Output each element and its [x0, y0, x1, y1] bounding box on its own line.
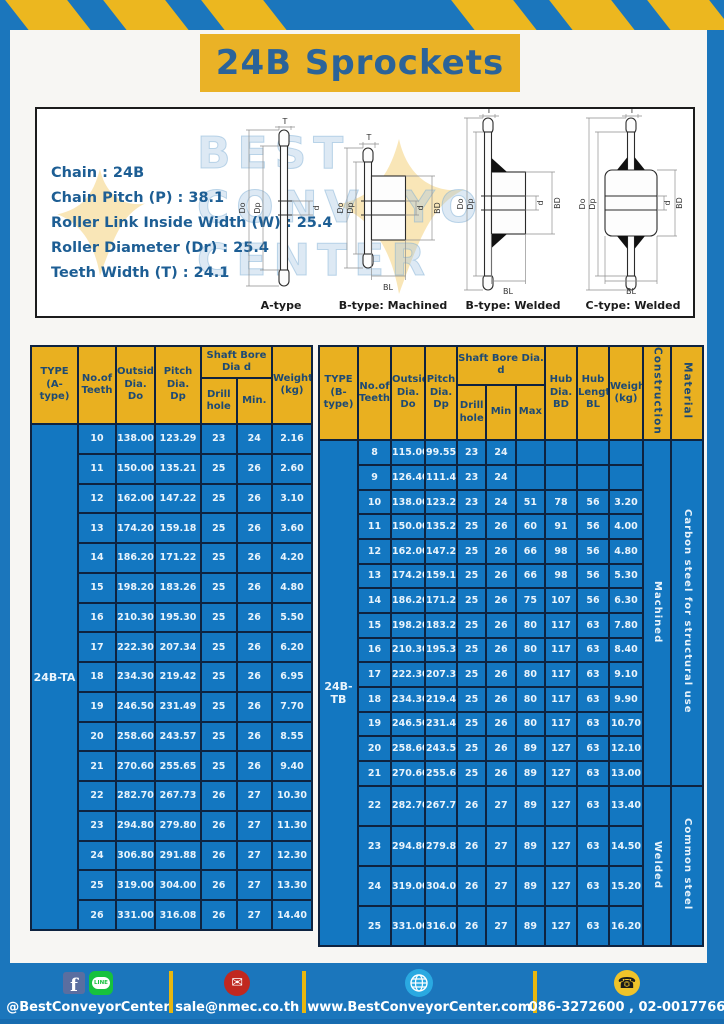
- table-a-cell: 27: [237, 811, 273, 841]
- a-type-table-header: TYPE (A-type) No.of Teeth Outside Dia. D…: [31, 346, 312, 424]
- diagram-a-type: T Do Dp d A-type: [233, 118, 329, 312]
- svg-text:BD: BD: [553, 197, 562, 209]
- table-b-cell: 319.00: [391, 866, 425, 906]
- table-a-cell: 198.20: [116, 573, 155, 603]
- table-b-cell: 9.10: [609, 662, 643, 687]
- table-a-cell: 231.49: [155, 692, 201, 722]
- table-b-cell: 10: [358, 490, 391, 515]
- hazard-stripes-right: [448, 0, 724, 30]
- table-a-cell: 12.30: [272, 841, 312, 871]
- table-b-cell: 27: [486, 906, 515, 946]
- table-a-cell: 255.65: [155, 751, 201, 781]
- table-b-cell: 9.90: [609, 687, 643, 712]
- table-b-cell: 186.20: [391, 588, 425, 613]
- table-b-cell: 138.00: [391, 490, 425, 515]
- svg-text:T: T: [282, 118, 288, 126]
- svg-text:Do: Do: [457, 198, 465, 209]
- table-b-cell: 304.00: [425, 866, 457, 906]
- table-b-cell: 198.20: [391, 613, 425, 638]
- facebook-icon: f: [63, 972, 85, 994]
- table-a-cell: 13.30: [272, 870, 312, 900]
- table-b-cell: 26: [457, 906, 486, 946]
- table-a-cell: 183.26: [155, 573, 201, 603]
- table-b-cell: 331.00: [391, 906, 425, 946]
- table-b-cell: 63: [577, 761, 609, 786]
- table-b-cell: 210.30: [391, 638, 425, 663]
- svg-text:Dp: Dp: [588, 198, 597, 209]
- table-b-cell: 63: [577, 662, 609, 687]
- table-b-cell: 123.29: [425, 490, 457, 515]
- table-b-cell: 6.30: [609, 588, 643, 613]
- table-b-cell: 117: [545, 687, 577, 712]
- phone-numbers: 086-3272600 , 02-0017766: [529, 1000, 724, 1015]
- table-a-cell: 25: [201, 454, 237, 484]
- table-b-cell: 162.00: [391, 539, 425, 564]
- table-a-cell: 159.18: [155, 513, 201, 543]
- table-b-cell: 219.42: [425, 687, 457, 712]
- table-a-cell: 25: [201, 662, 237, 692]
- table-a-cell: 246.50: [116, 692, 155, 722]
- table-a-cell: 26: [237, 751, 273, 781]
- table-b-cell: 11: [358, 514, 391, 539]
- table-b-cell: 89: [516, 736, 545, 761]
- table-b-cell: 111.40: [425, 465, 457, 490]
- mail-icon: ✉: [224, 970, 250, 996]
- table-a-cell: 19: [78, 692, 116, 722]
- table-b-cell: 26: [486, 613, 515, 638]
- table-a-cell: 23: [78, 811, 116, 841]
- table-b-cell: 25: [358, 906, 391, 946]
- table-a-cell: 15: [78, 573, 116, 603]
- table-a-cell: 27: [237, 900, 273, 930]
- table-a-cell: 8.55: [272, 722, 312, 752]
- table-b-cell: 282.70: [391, 786, 425, 826]
- table-a-cell: 20: [78, 722, 116, 752]
- table-b-construction-cell: Welded: [643, 786, 671, 946]
- table-b-cell: 159.18: [425, 564, 457, 589]
- table-a-cell: 26: [237, 484, 273, 514]
- table-b-cell: 16: [358, 638, 391, 663]
- table-b-cell: 80: [516, 662, 545, 687]
- table-b-cell: 56: [577, 539, 609, 564]
- b-type-table-header: TYPE (B-type) No.of Teeth Outside Dia. D…: [319, 346, 703, 440]
- table-a-cell: 291.88: [155, 841, 201, 871]
- header-max-b: Max: [516, 385, 545, 441]
- table-b-cell: 89: [516, 906, 545, 946]
- table-b-cell: 26: [486, 514, 515, 539]
- diagram-label-b-type-machined: B-type: Machined: [339, 299, 448, 312]
- table-b-cell: 26: [486, 761, 515, 786]
- table-b-cell: 26: [457, 826, 486, 866]
- table-a-cell: 243.57: [155, 722, 201, 752]
- table-b-cell: 258.60: [391, 736, 425, 761]
- table-b-cell: 115.00: [391, 440, 425, 465]
- table-a-cell: 258.60: [116, 722, 155, 752]
- table-b-cell: 25: [457, 588, 486, 613]
- table-b-cell: 63: [577, 712, 609, 737]
- svg-text:Do: Do: [337, 202, 345, 213]
- a-type-drawing: T Do Dp d: [233, 118, 329, 298]
- table-b-cell: 26: [486, 638, 515, 663]
- table-a-cell: 195.30: [155, 603, 201, 633]
- table-b-cell: 63: [577, 736, 609, 761]
- table-b-cell: 117: [545, 712, 577, 737]
- table-b-cell: 22: [358, 786, 391, 826]
- table-b-cell: 78: [545, 490, 577, 515]
- header-shaft-bore-a: Shaft Bore Dia d: [201, 346, 272, 378]
- table-a-cell: 27: [237, 781, 273, 811]
- svg-text:d: d: [312, 205, 321, 210]
- footer-phone-section: ☎ 086-3272600 , 02-0017766: [538, 968, 716, 1015]
- table-b-cell: 25: [457, 662, 486, 687]
- table-b-cell: 63: [577, 906, 609, 946]
- footer-divider: [169, 971, 173, 1013]
- table-b-cell: 23: [457, 490, 486, 515]
- table-b-cell: 25: [457, 564, 486, 589]
- table-b-cell: 26: [457, 866, 486, 906]
- footer-contact-bar: f LINE @BestConveyorCenter ✉ sale@nmec.c…: [0, 963, 724, 1024]
- table-b-cell: 24: [486, 440, 515, 465]
- table-a-cell: 21: [78, 751, 116, 781]
- table-b-cell: 27: [486, 786, 515, 826]
- table-b-cell: 89: [516, 786, 545, 826]
- svg-text:Do: Do: [578, 198, 587, 209]
- table-b-cell: 4.80: [609, 539, 643, 564]
- diagram-b-type-welded: T Do Dp d: [457, 108, 569, 312]
- phone-icon: ☎: [614, 970, 640, 996]
- table-b-cell: [577, 465, 609, 490]
- header-construction-b: Construction: [643, 346, 671, 440]
- table-b-cell: [577, 440, 609, 465]
- table-a-cell: 171.22: [155, 543, 201, 573]
- table-b-cell: 24: [358, 866, 391, 906]
- table-b-cell: 99.55: [425, 440, 457, 465]
- table-a-cell: 16: [78, 603, 116, 633]
- table-a-cell: 25: [78, 870, 116, 900]
- website-url: www.BestConveyorCenter.com: [307, 1000, 531, 1015]
- table-b-cell: 56: [577, 588, 609, 613]
- content-area: 24B Sprockets BEST CONVEYOR CENTER Chain…: [10, 30, 707, 963]
- table-b-cell: 56: [577, 564, 609, 589]
- table-a-cell: 26: [237, 722, 273, 752]
- table-b-cell: 63: [577, 638, 609, 663]
- table-a-cell: 25: [201, 573, 237, 603]
- table-a-cell: 25: [201, 722, 237, 752]
- header-outside-dia-a: Outside Dia. Do: [116, 346, 155, 424]
- table-b-cell: 270.60: [391, 761, 425, 786]
- table-b-cell: 27: [486, 826, 515, 866]
- table-b-cell: [516, 440, 545, 465]
- table-b-cell: 183.26: [425, 613, 457, 638]
- svg-text:BL: BL: [503, 287, 513, 296]
- header-type-a: TYPE (A-type): [31, 346, 78, 424]
- table-b-cell: 267.73: [425, 786, 457, 826]
- diagram-label-a-type: A-type: [261, 299, 302, 312]
- table-b-cell: 80: [516, 687, 545, 712]
- table-a-cell: 26: [201, 811, 237, 841]
- table-b-cell: 25: [457, 736, 486, 761]
- table-a-cell: 17: [78, 632, 116, 662]
- table-b-cell: 25: [457, 514, 486, 539]
- table-a-cell: 25: [201, 603, 237, 633]
- table-b-cell: 294.80: [391, 826, 425, 866]
- table-a-cell: 222.30: [116, 632, 155, 662]
- table-b-material-cell: Carbon steel for structural use: [671, 440, 703, 786]
- table-b-cell: 9: [358, 465, 391, 490]
- table-a-cell: 25: [201, 513, 237, 543]
- table-b-cell: 255.65: [425, 761, 457, 786]
- table-b-cell: 222.30: [391, 662, 425, 687]
- header-pitch-dia-a: Pitch Dia. Dp: [155, 346, 201, 424]
- table-a-cell: 4.80: [272, 573, 312, 603]
- table-b-cell: [545, 440, 577, 465]
- table-b-cell: 24: [486, 490, 515, 515]
- table-b-cell: 75: [516, 588, 545, 613]
- header-hub-dia-b: Hub Dia. BD: [545, 346, 577, 440]
- table-b-cell: 8.40: [609, 638, 643, 663]
- table-b-cell: 80: [516, 638, 545, 663]
- table-b-cell: 127: [545, 906, 577, 946]
- table-b-cell: 26: [486, 687, 515, 712]
- table-b-cell: 246.50: [391, 712, 425, 737]
- table-a-cell: 2.60: [272, 454, 312, 484]
- table-b-cell: 127: [545, 761, 577, 786]
- table-a-cell: 26: [237, 662, 273, 692]
- table-a-cell: 13: [78, 513, 116, 543]
- svg-text:T: T: [629, 108, 635, 115]
- header-hub-length-b: Hub Length BL: [577, 346, 609, 440]
- a-type-spec-table: TYPE (A-type) No.of Teeth Outside Dia. D…: [30, 345, 313, 931]
- table-b-cell: 127: [545, 866, 577, 906]
- table-b-cell: 56: [577, 490, 609, 515]
- table-b-cell: 279.80: [425, 826, 457, 866]
- table-a-cell: 7.70: [272, 692, 312, 722]
- table-b-cell: 80: [516, 712, 545, 737]
- table-b-cell: 21: [358, 761, 391, 786]
- table-b-cell: 89: [516, 866, 545, 906]
- header-shaft-bore-b: Shaft Bore Dia. d: [457, 346, 545, 385]
- table-a-cell: 11: [78, 454, 116, 484]
- table-a-cell: 26: [201, 870, 237, 900]
- table-b-cell: 20: [358, 736, 391, 761]
- social-handle: @BestConveyorCenter: [6, 1000, 170, 1015]
- table-a-cell: 25: [201, 484, 237, 514]
- table-a-cell: 23: [201, 424, 237, 454]
- table-b-cell: 24: [486, 465, 515, 490]
- table-b-cell: 8: [358, 440, 391, 465]
- table-b-cell: 13.00: [609, 761, 643, 786]
- table-b-cell: 5.30: [609, 564, 643, 589]
- table-a-cell: 24: [237, 424, 273, 454]
- svg-text:T: T: [366, 133, 372, 142]
- b-type-machined-drawing: T Do Dp d BD: [337, 118, 449, 298]
- table-a-cell: 26: [237, 543, 273, 573]
- table-b-cell: [609, 465, 643, 490]
- table-b-cell: 60: [516, 514, 545, 539]
- table-b-cell: 231.49: [425, 712, 457, 737]
- table-a-cell: 219.42: [155, 662, 201, 692]
- svg-text:T: T: [486, 108, 492, 115]
- table-a-cell: 3.60: [272, 513, 312, 543]
- table-b-cell: 63: [577, 866, 609, 906]
- table-b-cell: 127: [545, 736, 577, 761]
- table-a-cell: 331.00: [116, 900, 155, 930]
- table-b-row: 22282.70267.732627891276313.40WeldedComm…: [319, 786, 703, 826]
- table-b-cell: 316.08: [425, 906, 457, 946]
- table-b-cell: 26: [486, 662, 515, 687]
- table-a-cell: 304.00: [155, 870, 201, 900]
- table-a-cell: 27: [237, 841, 273, 871]
- table-b-cell: 127: [545, 786, 577, 826]
- b-type-welded-drawing: T Do Dp d: [457, 108, 569, 298]
- table-b-cell: 13.40: [609, 786, 643, 826]
- table-a-cell: 6.20: [272, 632, 312, 662]
- table-a-cell: 22: [78, 781, 116, 811]
- svg-text:BL: BL: [383, 283, 393, 292]
- table-a-cell: 25: [201, 751, 237, 781]
- table-b-cell: 117: [545, 638, 577, 663]
- table-b-cell: 243.57: [425, 736, 457, 761]
- table-b-cell: 135.21: [425, 514, 457, 539]
- table-a-cell: 270.60: [116, 751, 155, 781]
- table-a-cell: 26: [237, 454, 273, 484]
- table-a-cell: 2.16: [272, 424, 312, 454]
- table-b-cell: 63: [577, 613, 609, 638]
- table-a-cell: 26: [237, 603, 273, 633]
- table-a-cell: 207.34: [155, 632, 201, 662]
- table-b-cell: 15.20: [609, 866, 643, 906]
- table-a-type-label: 24B-TA: [31, 424, 78, 930]
- b-type-spec-table: TYPE (B-type) No.of Teeth Outside Dia. D…: [318, 345, 704, 947]
- table-a-cell: 267.73: [155, 781, 201, 811]
- table-b-cell: 89: [516, 826, 545, 866]
- top-hazard-bar: [0, 0, 724, 30]
- table-a-cell: 27: [237, 870, 273, 900]
- table-b-cell: 150.00: [391, 514, 425, 539]
- table-b-cell: 147.22: [425, 539, 457, 564]
- table-b-cell: 23: [358, 826, 391, 866]
- b-type-table-body: 24B-TB8115.0099.552324MachinedCarbon ste…: [319, 440, 703, 946]
- table-b-cell: 98: [545, 539, 577, 564]
- table-a-cell: 25: [201, 692, 237, 722]
- table-a-cell: 26: [237, 692, 273, 722]
- table-b-cell: 14: [358, 588, 391, 613]
- table-b-cell: 3.20: [609, 490, 643, 515]
- table-b-cell: 25: [457, 761, 486, 786]
- table-b-cell: 126.40: [391, 465, 425, 490]
- svg-text:Dp: Dp: [346, 202, 355, 213]
- table-b-cell: 15: [358, 613, 391, 638]
- table-b-cell: 56: [577, 514, 609, 539]
- table-a-cell: 319.00: [116, 870, 155, 900]
- table-b-cell: 26: [486, 736, 515, 761]
- table-b-cell: 66: [516, 539, 545, 564]
- svg-text:BL: BL: [626, 287, 636, 296]
- table-b-cell: 26: [486, 539, 515, 564]
- line-app-icon: LINE: [89, 971, 113, 995]
- header-drill-hole-a: Drill hole: [201, 378, 237, 424]
- table-a-cell: 12: [78, 484, 116, 514]
- table-a-cell: 147.22: [155, 484, 201, 514]
- footer-divider: [302, 971, 306, 1013]
- table-a-cell: 234.30: [116, 662, 155, 692]
- table-b-cell: 26: [486, 588, 515, 613]
- table-a-cell: 282.70: [116, 781, 155, 811]
- table-b-cell: 7.80: [609, 613, 643, 638]
- table-b-cell: [609, 440, 643, 465]
- table-b-cell: 25: [457, 638, 486, 663]
- table-b-cell: 127: [545, 826, 577, 866]
- table-a-cell: 186.20: [116, 543, 155, 573]
- table-a-cell: 279.80: [155, 811, 201, 841]
- table-b-cell: [516, 465, 545, 490]
- table-a-row: 24B-TA10138.00123.2923242.16: [31, 424, 312, 454]
- svg-text:Dp: Dp: [466, 198, 475, 209]
- table-b-cell: 107: [545, 588, 577, 613]
- spec-info-box: BEST CONVEYOR CENTER Chain : 24B Chain P…: [35, 107, 695, 318]
- title-banner: 24B Sprockets: [200, 34, 520, 92]
- table-b-cell: 26: [486, 564, 515, 589]
- table-a-cell: 25: [201, 543, 237, 573]
- table-b-row: 24B-TB8115.0099.552324MachinedCarbon ste…: [319, 440, 703, 465]
- table-a-cell: 210.30: [116, 603, 155, 633]
- table-b-cell: 4.00: [609, 514, 643, 539]
- table-b-cell: 25: [457, 613, 486, 638]
- svg-text:BD: BD: [433, 202, 442, 214]
- table-a-cell: 306.80: [116, 841, 155, 871]
- table-a-cell: 26: [201, 781, 237, 811]
- table-a-cell: 18: [78, 662, 116, 692]
- table-b-cell: 63: [577, 687, 609, 712]
- table-a-cell: 123.29: [155, 424, 201, 454]
- table-a-cell: 5.50: [272, 603, 312, 633]
- svg-text:d: d: [663, 200, 672, 205]
- svg-text:BD: BD: [675, 197, 684, 209]
- diagram-c-type-welded: T Do Dp: [577, 108, 689, 312]
- svg-text:Dp: Dp: [253, 202, 262, 213]
- table-a-cell: 26: [237, 632, 273, 662]
- header-pitch-dia-b: Pitch Dia. Dp: [425, 346, 457, 440]
- table-a-cell: 14.40: [272, 900, 312, 930]
- table-a-cell: 25: [201, 632, 237, 662]
- catalog-page: 24B Sprockets BEST CONVEYOR CENTER Chain…: [0, 0, 724, 1024]
- table-a-cell: 26: [237, 573, 273, 603]
- header-material-b: Material: [671, 346, 703, 440]
- table-b-cell: 25: [457, 539, 486, 564]
- table-a-cell: 11.30: [272, 811, 312, 841]
- header-weight-a: Weight (kg): [272, 346, 312, 424]
- header-teeth-a: No.of Teeth: [78, 346, 116, 424]
- a-type-table-body: 24B-TA10138.00123.2923242.1611150.00135.…: [31, 424, 312, 930]
- c-type-welded-drawing: T Do Dp: [577, 108, 689, 298]
- diagram-label-b-type-welded: B-type: Welded: [465, 299, 560, 312]
- table-b-cell: 17: [358, 662, 391, 687]
- table-b-cell: 25: [457, 687, 486, 712]
- header-min-a: Min.: [237, 378, 273, 424]
- table-b-cell: 91: [545, 514, 577, 539]
- header-drill-hole-b: Drill hole: [457, 385, 486, 441]
- table-b-cell: 195.30: [425, 638, 457, 663]
- table-a-cell: 26: [201, 841, 237, 871]
- table-b-construction-cell: Machined: [643, 440, 671, 786]
- table-a-cell: 174.20: [116, 513, 155, 543]
- table-b-cell: 117: [545, 662, 577, 687]
- table-b-cell: 207.34: [425, 662, 457, 687]
- header-min-b: Min: [486, 385, 515, 441]
- table-b-cell: 27: [486, 866, 515, 906]
- table-a-cell: 3.10: [272, 484, 312, 514]
- table-b-material-cell: Common steel: [671, 786, 703, 946]
